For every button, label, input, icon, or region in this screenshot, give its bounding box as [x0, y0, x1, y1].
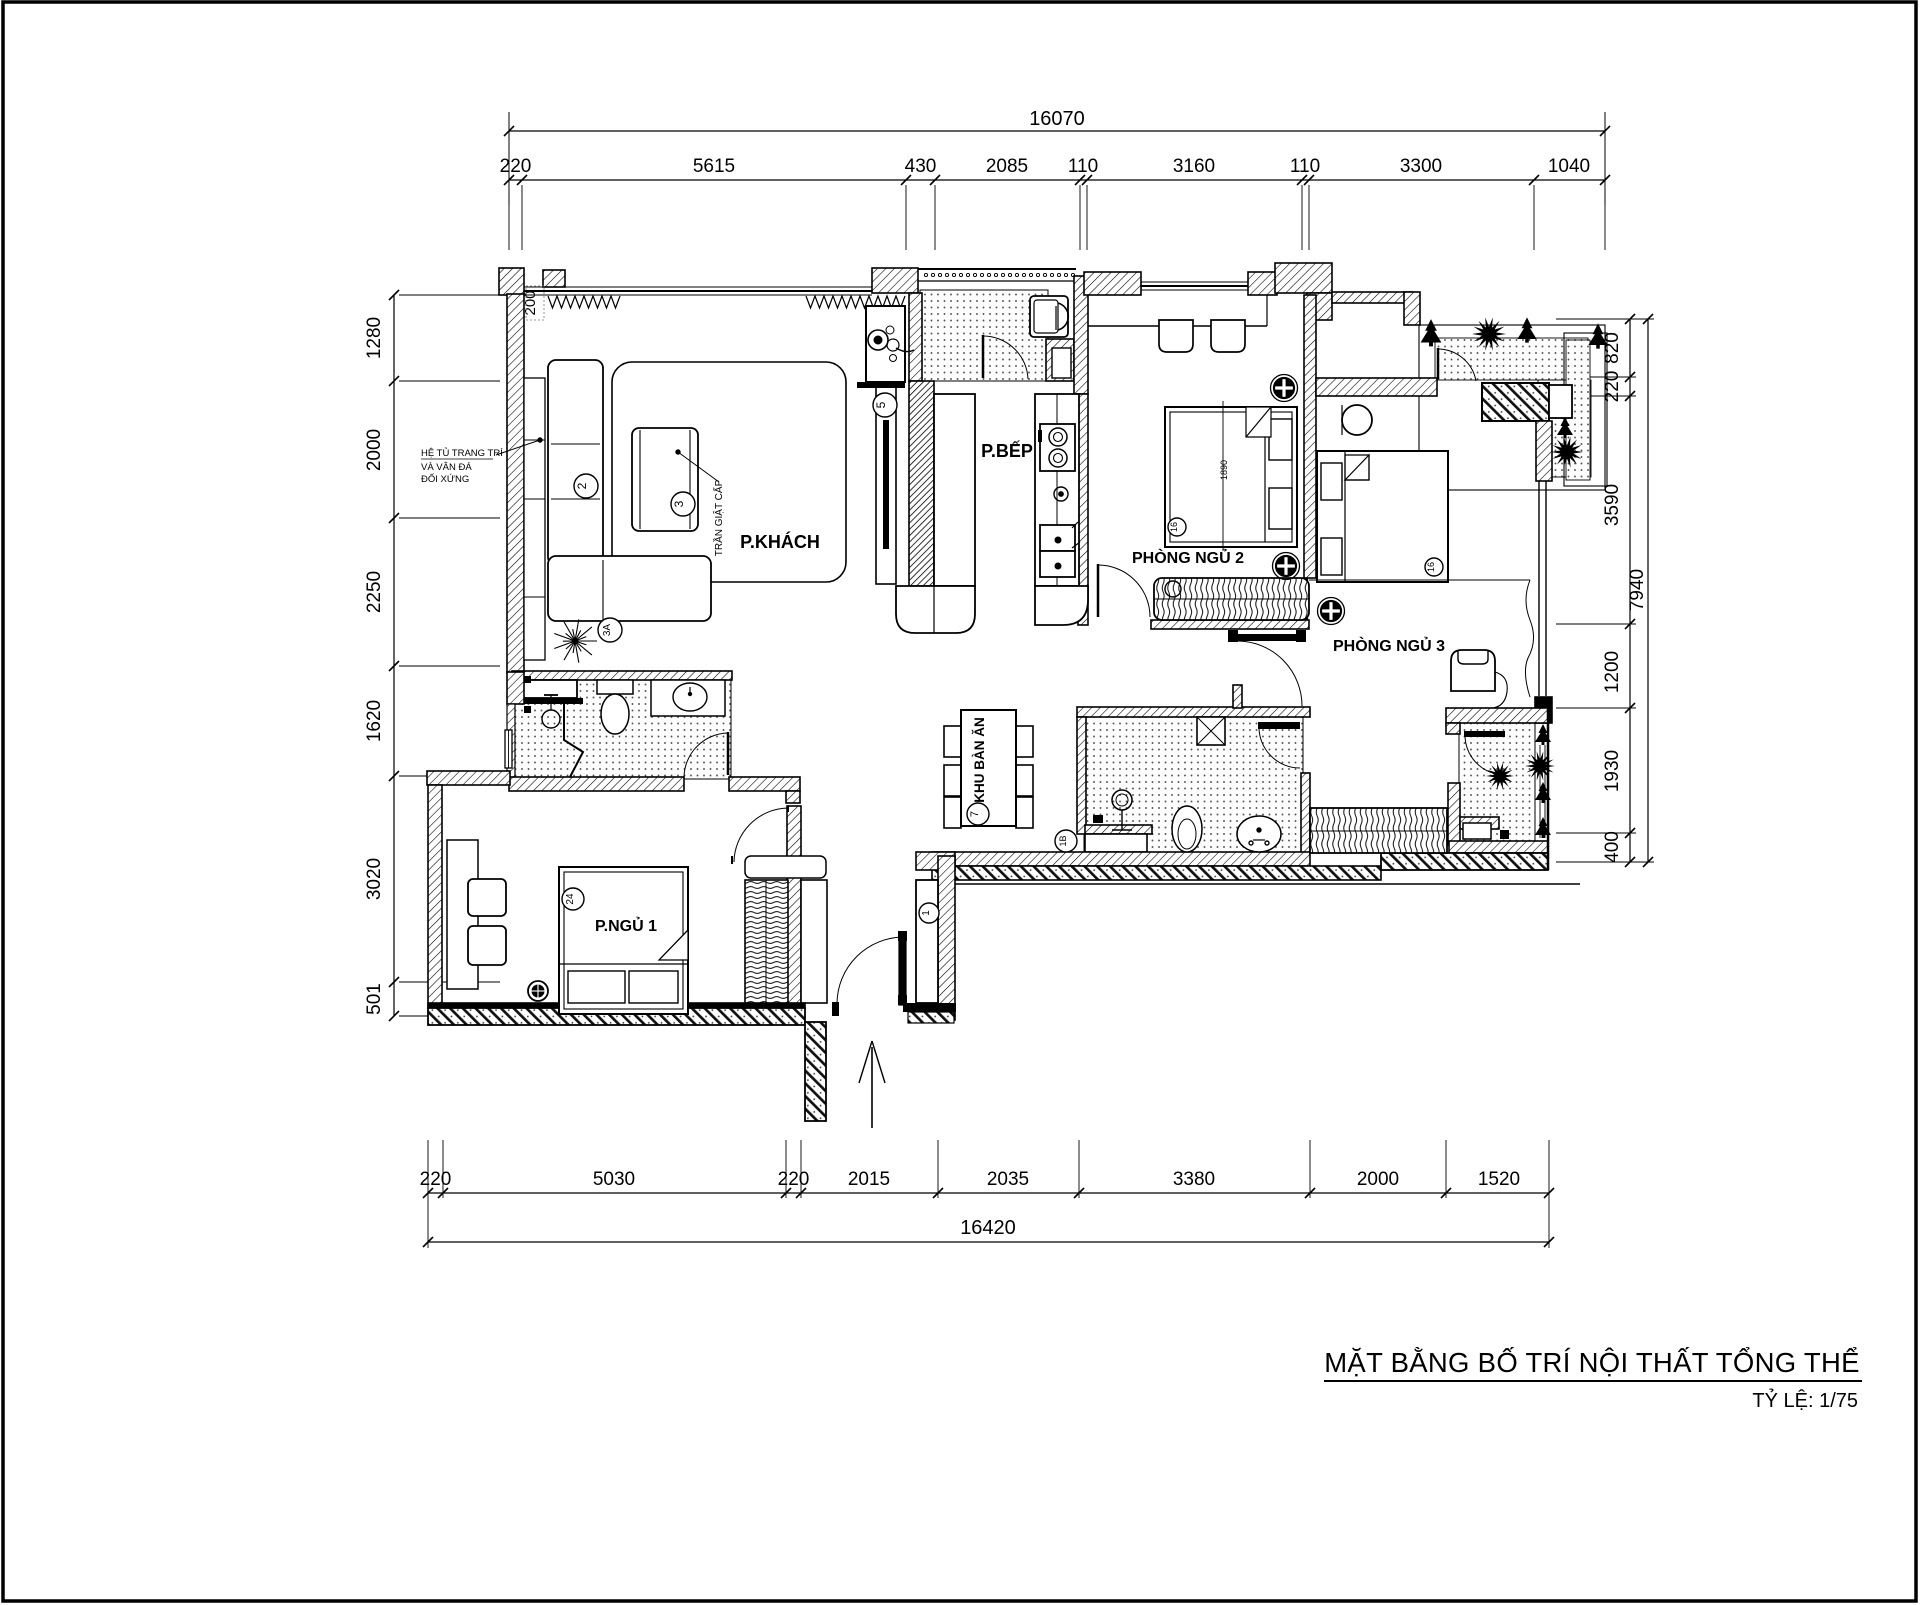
svg-text:220: 220 [420, 1169, 452, 1190]
svg-text:110: 110 [1068, 156, 1098, 177]
svg-text:2: 2 [575, 482, 589, 489]
svg-text:VÀ VÂN ĐÁ: VÀ VÂN ĐÁ [421, 462, 472, 473]
svg-text:1890: 1890 [1219, 460, 1229, 480]
svg-text:2085: 2085 [986, 156, 1028, 177]
svg-text:5030: 5030 [593, 1169, 635, 1190]
svg-text:3A: 3A [602, 624, 613, 637]
svg-text:1: 1 [921, 910, 932, 916]
svg-text:1040: 1040 [1548, 156, 1590, 177]
svg-text:KHU BÀN ĂN: KHU BÀN ĂN [972, 717, 987, 803]
svg-text:ĐỐI XỨNG: ĐỐI XỨNG [421, 473, 469, 485]
svg-text:24: 24 [565, 893, 576, 905]
svg-text:P.KHÁCH: P.KHÁCH [740, 531, 820, 552]
svg-text:2015: 2015 [848, 1169, 890, 1190]
svg-text:2000: 2000 [364, 429, 385, 471]
svg-text:200: 200 [522, 290, 539, 315]
svg-text:2000: 2000 [1357, 1169, 1399, 1190]
svg-text:430: 430 [905, 156, 937, 177]
svg-text:3020: 3020 [364, 858, 385, 900]
svg-text:TỶ LỆ: 1/75: TỶ LỆ: 1/75 [1752, 1389, 1858, 1412]
svg-text:220: 220 [778, 1169, 810, 1190]
svg-text:2035: 2035 [987, 1169, 1029, 1190]
svg-text:3160: 3160 [1173, 156, 1215, 177]
svg-text:PHÒNG NGỦ 3: PHÒNG NGỦ 3 [1333, 636, 1445, 655]
svg-text:5615: 5615 [693, 156, 735, 177]
svg-text:501: 501 [364, 983, 385, 1015]
svg-text:1930: 1930 [1602, 750, 1623, 792]
svg-text:16: 16 [1426, 562, 1436, 572]
svg-text:2250: 2250 [364, 571, 385, 613]
svg-text:1620: 1620 [364, 700, 385, 742]
svg-text:3380: 3380 [1173, 1169, 1215, 1190]
svg-text:400: 400 [1602, 831, 1623, 863]
svg-text:5: 5 [874, 401, 888, 408]
svg-text:16420: 16420 [960, 1217, 1016, 1239]
svg-text:1520: 1520 [1478, 1169, 1520, 1190]
svg-text:3: 3 [672, 500, 686, 507]
svg-text:3300: 3300 [1400, 156, 1442, 177]
svg-text:16: 16 [1169, 522, 1179, 532]
svg-text:220: 220 [500, 156, 532, 177]
svg-text:1200: 1200 [1602, 651, 1623, 693]
svg-text:P.BẾP: P.BẾP [981, 440, 1033, 461]
svg-text:1280: 1280 [364, 317, 385, 359]
svg-text:PHÒNG NGỦ 2: PHÒNG NGỦ 2 [1132, 548, 1244, 567]
svg-text:16070: 16070 [1029, 108, 1085, 130]
svg-text:1B: 1B [1058, 835, 1068, 846]
svg-text:P.NGỦ 1: P.NGỦ 1 [595, 916, 657, 935]
svg-text:TRẦN GIẬT CẤP: TRẦN GIẬT CẤP [712, 479, 725, 556]
svg-text:7940: 7940 [1627, 569, 1648, 611]
svg-text:MẶT BẰNG BỐ TRÍ NỘI THẤT TỔNG: MẶT BẰNG BỐ TRÍ NỘI THẤT TỔNG THỂ [1324, 1346, 1860, 1378]
svg-text:110: 110 [1290, 156, 1320, 177]
svg-text:HỆ TỦ TRANG TRÍ: HỆ TỦ TRANG TRÍ [421, 447, 503, 459]
svg-text:7: 7 [969, 811, 981, 817]
